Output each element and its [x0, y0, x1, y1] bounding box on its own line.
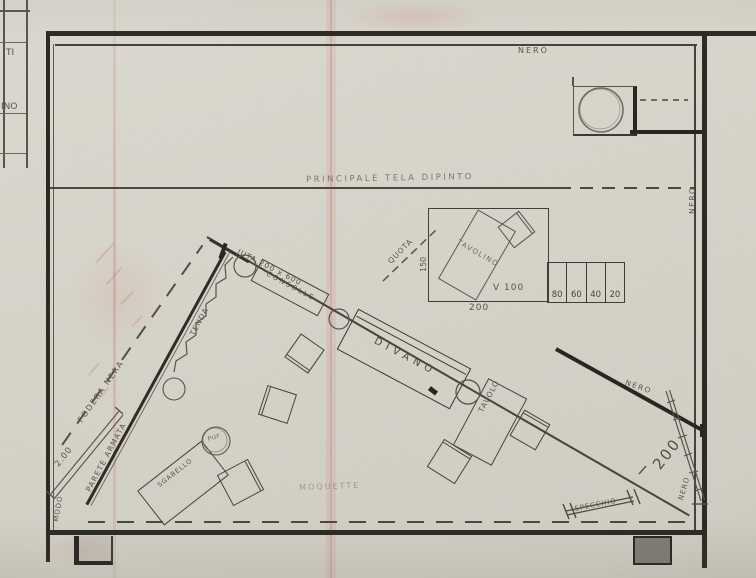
dim-lines-left	[46, 407, 646, 499]
specchio-mirror	[563, 489, 640, 519]
puf-circle-inner	[203, 428, 227, 452]
nero-track-right	[666, 390, 708, 504]
quota-dashed-line	[383, 229, 437, 281]
tenda-zigzag-line	[174, 257, 233, 372]
scanned-floor-plan: TI INO NERO PRINCIPALE TELA DIPINTO NERO…	[0, 0, 756, 578]
fixture-circle-inner	[580, 89, 620, 129]
stool-circle	[163, 378, 185, 400]
stool-circle	[456, 380, 480, 404]
sketch-overlay	[0, 0, 756, 578]
stool-circle	[329, 309, 349, 329]
stool-circle	[234, 255, 256, 277]
